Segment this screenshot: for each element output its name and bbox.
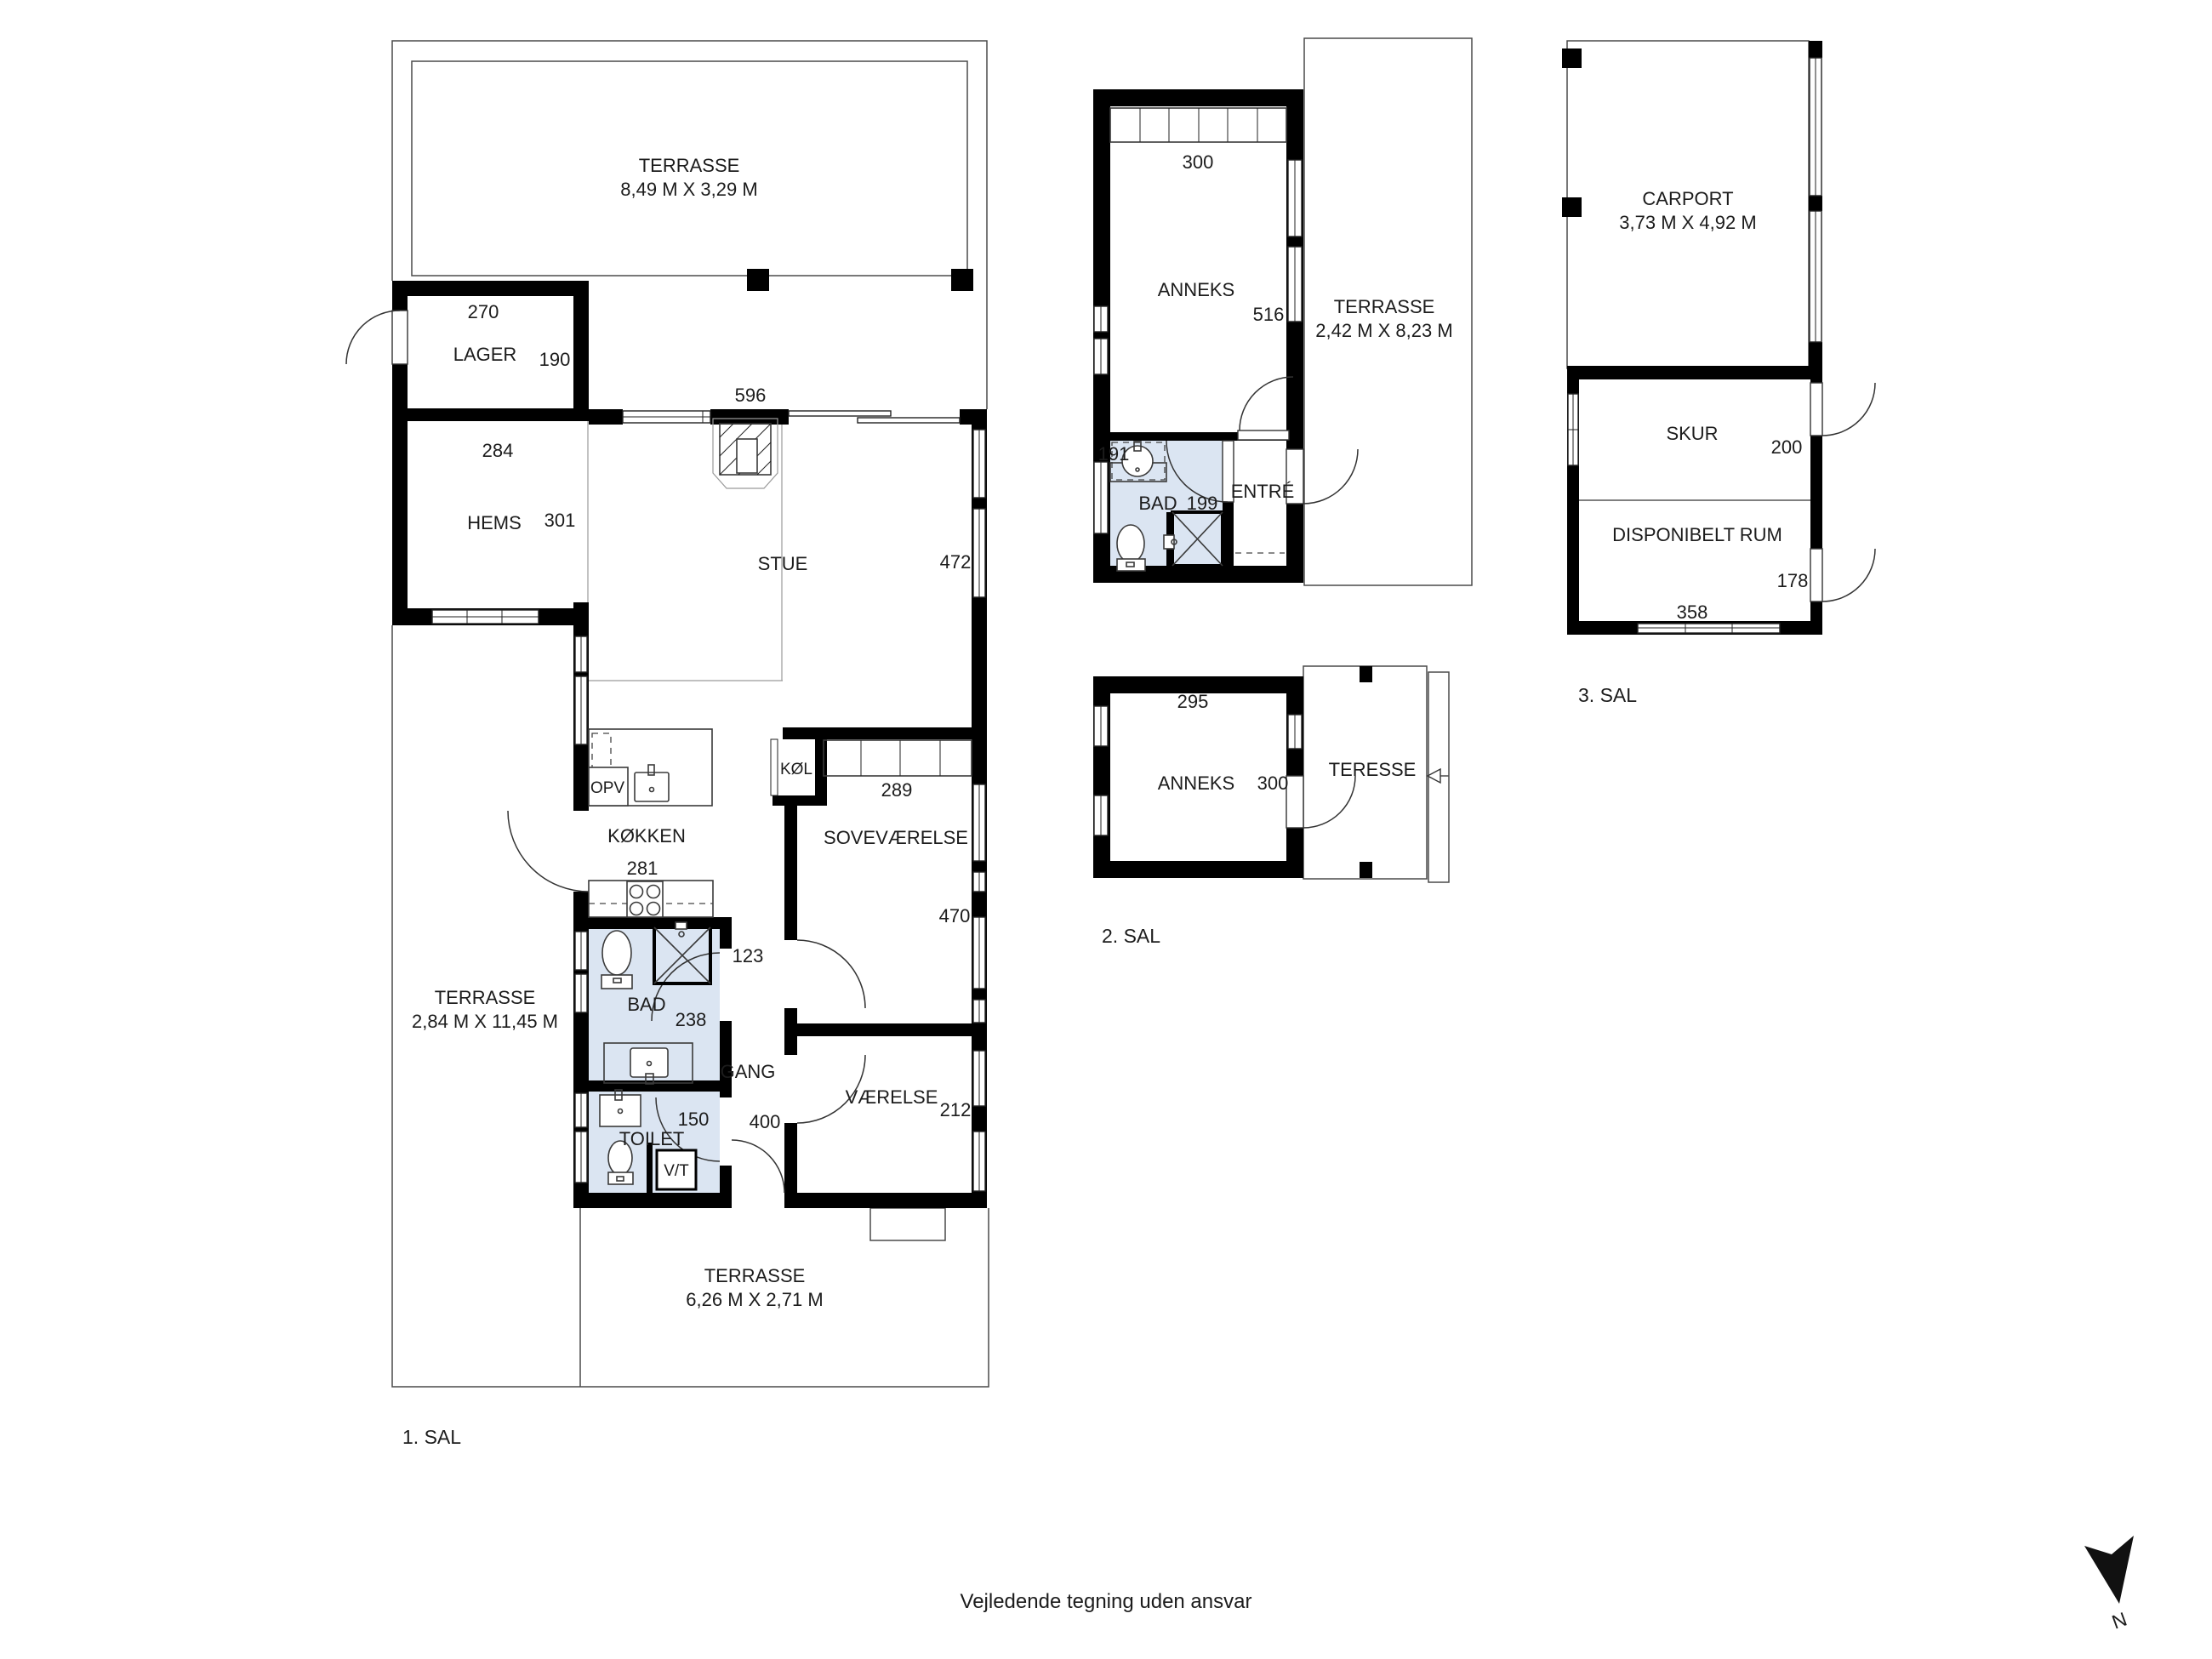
sovevaerelse-width: 289: [881, 779, 913, 801]
stue-label: STUE: [758, 553, 808, 574]
toilet-room-sink: [600, 1090, 641, 1126]
door-kitchen-terrace: [508, 811, 589, 892]
anneks2-label: ANNEKS: [1158, 772, 1234, 794]
window: [1638, 624, 1780, 633]
anneks-terrace-label: TERRASSE: [1334, 296, 1435, 317]
teresse-label: TERESSE: [1329, 759, 1417, 780]
vaerelse-depth: 212: [940, 1099, 972, 1120]
toilet-label: TOILET: [619, 1128, 685, 1149]
gang-width-bottom: 400: [750, 1111, 781, 1132]
window: [575, 932, 587, 970]
terrace-top-label: TERRASSE: [639, 155, 740, 176]
sovevaerelse-depth: 470: [939, 905, 971, 926]
teresse-post: [1360, 862, 1372, 878]
carport-dims: 3,73 M X 4,92 M: [1619, 212, 1756, 233]
window: [575, 1093, 587, 1127]
window: [1810, 211, 1821, 342]
gang-label: GANG: [721, 1061, 776, 1082]
window: [432, 610, 539, 624]
door-lager: [346, 311, 408, 364]
terrace-left-label: TERRASSE: [435, 987, 536, 1008]
window: [1568, 394, 1578, 465]
anneks-width: 300: [1183, 151, 1214, 173]
window: [1094, 706, 1108, 746]
window: [1094, 795, 1108, 835]
terrace-top-dims: 8,49 M X 3,29 M: [620, 179, 757, 200]
anneks2-depth: 300: [1257, 772, 1289, 794]
window: [1810, 58, 1821, 196]
window: [973, 872, 985, 892]
terrace-left-dims: 2,84 M X 11,45 M: [412, 1011, 558, 1032]
north-label: N: [2109, 1608, 2130, 1633]
vt-label: V/T: [664, 1162, 689, 1180]
stue-depth: 472: [940, 551, 972, 573]
anneks-ground: 300 ANNEKS 516 191 BAD 199 ENTRÉ TERRASS…: [1093, 38, 1472, 585]
disponibelt-width: 358: [1677, 601, 1708, 623]
sovevaerelse-label: SOVEVÆRELSE: [824, 827, 968, 848]
window: [1094, 306, 1108, 332]
door-gang-terrace: [732, 1140, 784, 1208]
stue-width: 596: [735, 385, 767, 406]
teresse-post: [1360, 666, 1372, 682]
window: [575, 676, 587, 744]
lager-depth: 190: [539, 349, 571, 370]
window: [973, 917, 985, 989]
floor2-label: 2. SAL: [1102, 925, 1160, 947]
door-disponibelt: [1810, 549, 1875, 601]
bad-label: BAD: [627, 994, 665, 1015]
kokken-width: 281: [627, 858, 658, 879]
bad-width: 238: [676, 1009, 707, 1030]
fridge-cabinet: [771, 739, 778, 795]
lager-label: LAGER: [453, 344, 517, 365]
anneks-bad-depth: 199: [1187, 493, 1218, 514]
door-anneks-upper-terrace: [1286, 776, 1355, 828]
floor1-labels: TERRASSE 8,49 M X 3,29 M 270 LAGER 190 2…: [402, 155, 971, 1448]
anneks-bad-width: 191: [1098, 443, 1130, 465]
hems-width: 284: [482, 440, 514, 461]
window: [973, 509, 985, 597]
bedroom-closet: [824, 740, 972, 776]
terrace-bottom-dims: 6,26 M X 2,71 M: [686, 1289, 823, 1310]
carport-label: CARPORT: [1642, 188, 1733, 209]
door-entre-terrace: [1286, 449, 1358, 504]
window: [1094, 339, 1108, 374]
anneks-upper: 295 ANNEKS 300 TERESSE 2. SAL: [1093, 666, 1449, 947]
window: [973, 430, 985, 498]
fireplace: [713, 419, 778, 488]
anneks-upper-windows: [1094, 706, 1302, 835]
stairs: [1428, 672, 1449, 882]
anneks-bad-label: BAD: [1138, 493, 1177, 514]
disclaimer-text: Vejledende tegning uden ansvar: [961, 1590, 1252, 1613]
hems-depth: 301: [544, 510, 576, 531]
kitchen-stove-counter: [589, 881, 713, 917]
disponibelt-depth: 178: [1777, 570, 1809, 591]
floor1-label: 1. SAL: [402, 1426, 461, 1448]
floor3-label: 3. SAL: [1578, 684, 1637, 706]
window: [973, 784, 985, 861]
anneks-label: ANNEKS: [1158, 279, 1234, 300]
skur-label: SKUR: [1666, 423, 1718, 444]
window: [623, 411, 710, 423]
carport-post: [1562, 48, 1582, 68]
anneks-wardrobe: [1110, 108, 1286, 142]
anneks-depth: 516: [1253, 304, 1285, 325]
anneks2-width: 295: [1177, 691, 1209, 712]
kol-label: KØL: [780, 761, 812, 778]
window: [973, 1132, 985, 1191]
north-arrow-icon: [2084, 1536, 2134, 1604]
toilet-width: 150: [678, 1109, 710, 1130]
terrace-step: [870, 1208, 945, 1240]
terrace-post: [747, 269, 769, 291]
terrace-bottom-label: TERRASSE: [704, 1265, 806, 1286]
skur-depth: 200: [1771, 436, 1803, 458]
door-skur: [1810, 383, 1875, 436]
kokken-label: KØKKEN: [607, 825, 686, 847]
opv-label: OPV: [590, 779, 624, 797]
window: [1288, 715, 1302, 749]
window: [575, 636, 587, 672]
anneks-terrace-dims: 2,42 M X 8,23 M: [1315, 320, 1452, 341]
disponibelt-label: DISPONIBELT RUM: [1612, 524, 1782, 545]
window: [575, 1132, 587, 1183]
hems-label: HEMS: [467, 512, 522, 533]
sliding-door: [789, 411, 960, 423]
gang-width-top: 123: [733, 945, 764, 966]
north-compass: N: [2084, 1536, 2134, 1633]
vaerelse-label: VÆRELSE: [846, 1086, 938, 1108]
door-sovevaerelse: [784, 940, 865, 1008]
window: [1288, 247, 1302, 322]
floor-plan-canvas: TERRASSE 8,49 M X 3,29 M 270 LAGER 190 2…: [0, 0, 2212, 1659]
window: [973, 1000, 985, 1023]
door-anneks-entre: [1238, 377, 1293, 440]
anneks-upper-labels: 295 ANNEKS 300 TERESSE 2. SAL: [1102, 691, 1416, 947]
entre-label: ENTRÉ: [1231, 481, 1295, 502]
window: [1288, 160, 1302, 237]
lager-width: 270: [468, 301, 499, 322]
window: [575, 974, 587, 1012]
carport-post: [1562, 197, 1582, 217]
window: [1094, 462, 1108, 533]
terrace-post: [951, 269, 973, 291]
window: [973, 1051, 985, 1106]
outbuildings: CARPORT 3,73 M X 4,92 M SKUR 200 DISPONI…: [1562, 41, 1875, 706]
toilet-fixture: [601, 931, 632, 989]
